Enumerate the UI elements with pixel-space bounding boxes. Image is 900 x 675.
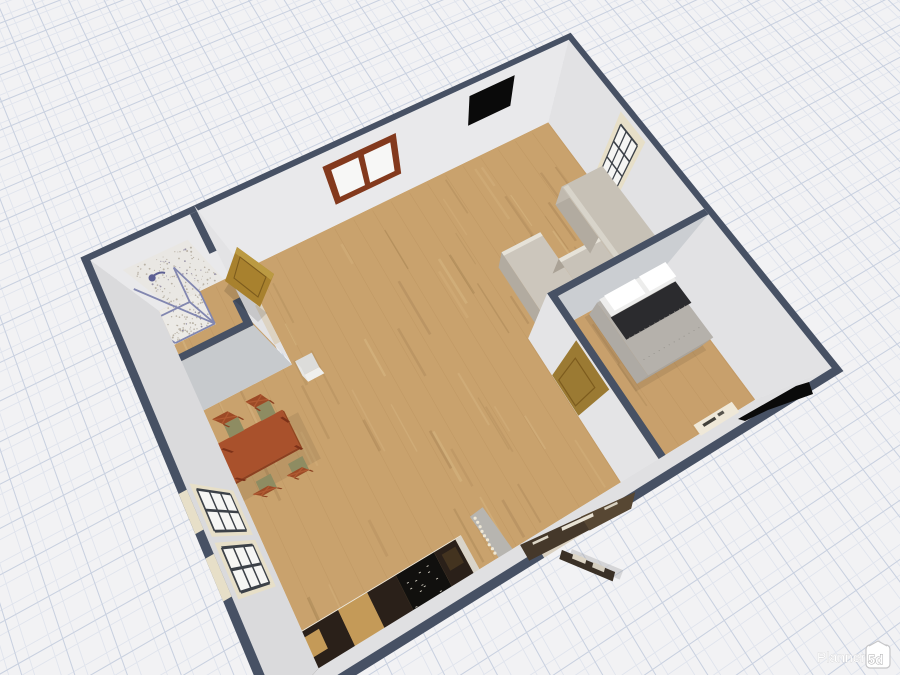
svg-text:Planner: Planner <box>817 649 866 665</box>
svg-text:5d: 5d <box>868 652 883 667</box>
